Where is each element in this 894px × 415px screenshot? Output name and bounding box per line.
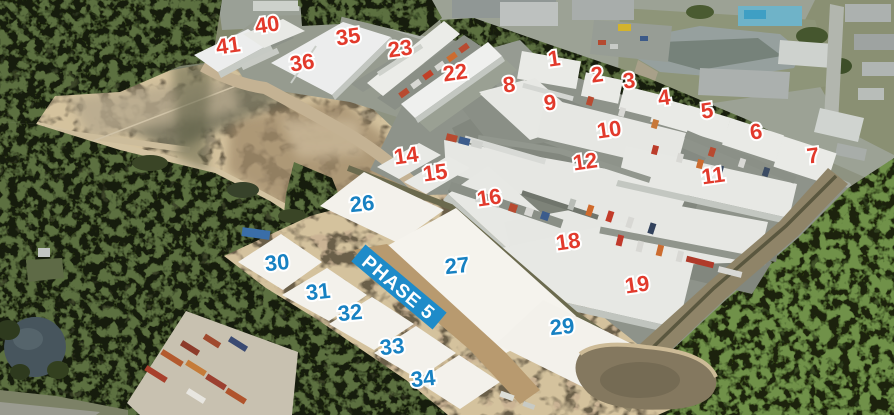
svg-text:15: 15: [421, 158, 449, 186]
svg-text:22: 22: [441, 58, 469, 86]
svg-text:32: 32: [337, 299, 364, 326]
svg-text:11: 11: [700, 161, 727, 189]
svg-text:27: 27: [444, 252, 471, 279]
svg-text:33: 33: [379, 333, 406, 360]
svg-text:40: 40: [253, 10, 281, 38]
svg-text:36: 36: [288, 48, 316, 76]
svg-text:10: 10: [595, 115, 623, 143]
svg-text:14: 14: [392, 141, 420, 169]
svg-text:29: 29: [549, 313, 576, 340]
svg-text:12: 12: [571, 147, 599, 175]
svg-text:41: 41: [214, 31, 242, 59]
svg-text:30: 30: [264, 249, 291, 276]
svg-text:19: 19: [623, 270, 651, 298]
svg-text:34: 34: [410, 365, 438, 393]
svg-text:26: 26: [349, 190, 376, 217]
svg-text:35: 35: [334, 22, 362, 50]
svg-text:18: 18: [554, 227, 582, 255]
svg-text:23: 23: [386, 34, 414, 62]
svg-text:16: 16: [475, 183, 503, 211]
svg-text:31: 31: [305, 278, 332, 305]
